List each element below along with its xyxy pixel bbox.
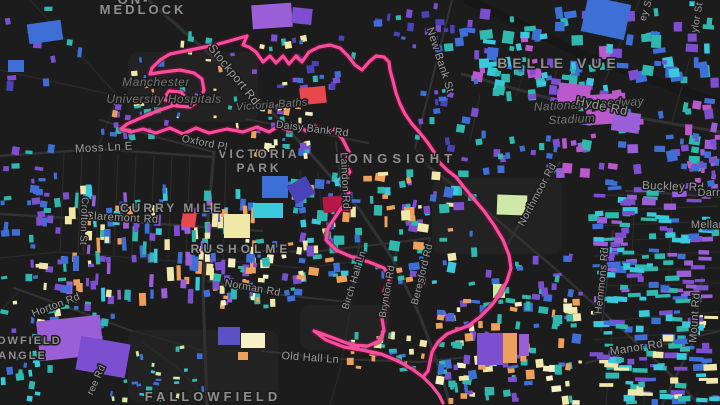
building xyxy=(377,187,384,194)
building xyxy=(57,259,62,264)
building xyxy=(139,293,146,306)
building xyxy=(149,274,154,287)
building xyxy=(469,231,473,237)
building xyxy=(662,60,667,65)
building xyxy=(123,379,127,383)
building xyxy=(25,150,32,154)
building xyxy=(11,163,19,169)
building xyxy=(418,205,422,209)
building xyxy=(334,71,341,78)
building xyxy=(621,227,629,233)
building xyxy=(604,363,618,368)
building xyxy=(36,264,44,268)
building xyxy=(674,339,688,344)
building xyxy=(31,197,40,205)
label-longsight: LONGSIGHT xyxy=(335,151,457,166)
building xyxy=(54,198,61,208)
building xyxy=(666,135,674,140)
building xyxy=(420,90,427,96)
building xyxy=(38,178,45,182)
building xyxy=(698,257,711,261)
building xyxy=(394,256,398,261)
building xyxy=(439,204,450,214)
building xyxy=(576,146,583,152)
building xyxy=(435,376,444,386)
building xyxy=(670,377,678,383)
building xyxy=(526,301,531,310)
building xyxy=(689,357,704,362)
building xyxy=(156,228,162,235)
building xyxy=(389,349,397,353)
building xyxy=(384,216,387,227)
building xyxy=(354,235,360,243)
building xyxy=(549,85,557,95)
building xyxy=(27,200,31,205)
label-rusholme: RUSHOLME xyxy=(191,242,292,256)
building xyxy=(616,324,628,329)
building xyxy=(445,313,450,321)
building xyxy=(599,162,605,169)
building xyxy=(654,61,661,66)
building xyxy=(628,69,639,80)
building xyxy=(401,36,406,40)
building xyxy=(406,335,411,341)
building xyxy=(167,267,175,281)
label-iangle: IANGLE xyxy=(0,350,47,362)
building xyxy=(580,168,590,178)
building xyxy=(605,373,619,379)
building xyxy=(565,381,570,387)
building xyxy=(491,323,500,331)
building xyxy=(293,207,299,213)
building xyxy=(638,381,645,387)
building xyxy=(443,260,447,265)
building xyxy=(691,265,705,269)
map-canvas[interactable]: ON-MEDLOCKBELLE VUEVICTORIAPARKLONGSIGHT… xyxy=(0,0,720,405)
building xyxy=(308,267,319,276)
building xyxy=(538,281,544,289)
building xyxy=(664,352,678,358)
building xyxy=(677,254,685,260)
building xyxy=(534,30,540,42)
building xyxy=(124,289,130,300)
building xyxy=(572,299,580,306)
building xyxy=(558,338,564,348)
building xyxy=(704,151,711,158)
building xyxy=(174,225,180,236)
building xyxy=(707,180,715,187)
building xyxy=(35,391,41,395)
building xyxy=(444,43,454,52)
building xyxy=(597,354,610,360)
building xyxy=(485,270,491,278)
label-manchester: Manchester xyxy=(122,75,190,89)
building xyxy=(111,314,115,319)
building xyxy=(536,80,546,86)
building xyxy=(419,340,427,348)
building xyxy=(429,117,434,124)
building xyxy=(406,9,413,18)
building xyxy=(546,135,551,142)
building xyxy=(374,205,383,216)
building xyxy=(680,139,684,145)
building xyxy=(551,385,561,392)
building xyxy=(299,40,303,44)
building xyxy=(184,368,188,371)
building xyxy=(192,379,197,382)
building xyxy=(101,288,105,302)
building xyxy=(33,190,38,194)
building xyxy=(515,302,522,307)
building xyxy=(667,228,673,233)
building xyxy=(447,253,456,262)
building xyxy=(433,108,441,114)
building xyxy=(541,287,549,297)
building xyxy=(460,393,467,399)
building xyxy=(627,359,634,365)
building xyxy=(495,70,502,76)
building xyxy=(663,335,674,342)
building xyxy=(646,290,658,296)
building xyxy=(703,364,717,371)
building xyxy=(539,143,544,150)
building xyxy=(297,275,306,279)
building xyxy=(1,377,6,385)
landmark-building xyxy=(503,333,517,363)
building xyxy=(114,122,119,128)
building xyxy=(685,124,692,135)
building xyxy=(339,35,345,40)
label-buckley-rd: Buckley Rd xyxy=(642,180,705,194)
building xyxy=(696,373,706,377)
building xyxy=(439,97,447,102)
building xyxy=(510,16,514,22)
building xyxy=(620,223,631,228)
building xyxy=(284,41,292,49)
building xyxy=(40,200,48,208)
building xyxy=(474,50,479,59)
building xyxy=(354,332,358,340)
building xyxy=(639,297,646,301)
building xyxy=(187,36,194,42)
building xyxy=(479,8,490,20)
building xyxy=(628,389,644,396)
building xyxy=(578,360,582,363)
building xyxy=(448,228,454,232)
building xyxy=(188,289,194,304)
building xyxy=(467,390,473,395)
building xyxy=(627,273,643,278)
building xyxy=(30,244,35,249)
building xyxy=(655,253,666,259)
building xyxy=(687,199,702,203)
building xyxy=(240,269,244,273)
building xyxy=(677,353,687,360)
building xyxy=(686,284,697,288)
landmark-building xyxy=(262,176,288,198)
building xyxy=(684,260,693,265)
label-stadium: Stadium xyxy=(548,111,595,127)
building xyxy=(604,321,613,326)
building xyxy=(498,153,503,159)
building xyxy=(605,212,619,218)
building xyxy=(654,146,665,152)
building xyxy=(305,112,313,116)
building xyxy=(522,295,531,300)
building xyxy=(326,180,330,184)
building xyxy=(261,257,270,267)
building xyxy=(644,266,658,271)
building xyxy=(642,198,656,205)
building xyxy=(641,217,657,221)
building xyxy=(54,173,58,180)
building xyxy=(6,81,13,91)
building xyxy=(1,230,10,238)
building xyxy=(44,208,51,213)
building xyxy=(122,237,127,251)
building xyxy=(332,77,340,84)
building xyxy=(570,323,576,328)
building xyxy=(525,45,533,52)
building xyxy=(481,131,485,139)
building xyxy=(180,279,186,288)
building xyxy=(475,138,483,145)
building xyxy=(686,43,699,52)
building xyxy=(89,264,95,267)
building xyxy=(653,364,663,370)
building xyxy=(597,217,607,224)
building xyxy=(388,240,400,252)
building xyxy=(627,144,638,153)
building xyxy=(528,373,533,378)
building xyxy=(491,278,499,285)
building xyxy=(450,25,455,33)
building xyxy=(566,314,573,322)
building xyxy=(479,58,489,68)
building xyxy=(706,378,718,384)
building xyxy=(253,263,257,268)
building xyxy=(664,203,676,209)
building xyxy=(674,367,687,371)
building xyxy=(649,248,659,252)
building xyxy=(161,288,168,298)
building xyxy=(594,194,606,198)
building xyxy=(669,288,677,293)
building xyxy=(106,289,112,297)
building xyxy=(299,258,306,264)
building xyxy=(630,267,645,273)
building xyxy=(154,249,158,263)
building xyxy=(704,109,714,120)
building xyxy=(443,28,448,32)
building xyxy=(448,398,453,404)
building xyxy=(443,186,454,198)
building xyxy=(406,169,413,177)
building xyxy=(649,233,656,239)
map-view[interactable]: ON-MEDLOCKBELLE VUEVICTORIAPARKLONGSIGHT… xyxy=(0,0,720,405)
building xyxy=(297,78,303,83)
label-medlock: MEDLOCK xyxy=(100,2,187,17)
building xyxy=(401,210,410,220)
building xyxy=(112,396,115,401)
building xyxy=(674,310,680,314)
building xyxy=(505,152,510,159)
building xyxy=(572,400,580,405)
building xyxy=(659,390,666,393)
building xyxy=(606,44,613,54)
building xyxy=(639,357,647,361)
building xyxy=(270,299,275,307)
building xyxy=(180,345,185,349)
building xyxy=(653,351,664,358)
building xyxy=(306,140,311,145)
building xyxy=(107,263,111,274)
building xyxy=(252,69,257,74)
building xyxy=(699,65,709,78)
building xyxy=(269,47,273,52)
building xyxy=(467,20,473,28)
building xyxy=(663,260,673,265)
building xyxy=(149,233,155,241)
building xyxy=(197,353,203,359)
building xyxy=(11,328,16,333)
building xyxy=(667,253,677,257)
building xyxy=(333,263,340,273)
label-belle-vue: BELLE VUE xyxy=(497,55,621,71)
building xyxy=(101,129,105,135)
building xyxy=(364,243,368,253)
building xyxy=(430,194,437,202)
building xyxy=(220,300,226,306)
building xyxy=(274,139,278,145)
building xyxy=(692,100,702,110)
building xyxy=(193,256,199,271)
building xyxy=(292,38,297,44)
building xyxy=(263,305,268,309)
building xyxy=(578,292,583,296)
building xyxy=(55,227,60,234)
building xyxy=(642,255,649,259)
building xyxy=(555,365,562,375)
building xyxy=(551,283,556,290)
building xyxy=(533,256,539,265)
building xyxy=(456,124,465,133)
building xyxy=(236,190,240,198)
building xyxy=(562,138,567,149)
building xyxy=(131,255,136,263)
building xyxy=(468,370,478,380)
building xyxy=(531,150,537,156)
building xyxy=(29,235,34,243)
building xyxy=(44,7,52,11)
building xyxy=(524,381,533,386)
building xyxy=(506,91,512,101)
building xyxy=(215,261,224,270)
building xyxy=(519,145,525,151)
building xyxy=(702,237,714,242)
building xyxy=(532,294,541,300)
building xyxy=(471,247,477,257)
building xyxy=(176,265,181,280)
building xyxy=(177,252,182,264)
building xyxy=(445,359,452,369)
building xyxy=(696,348,712,353)
building xyxy=(106,257,111,263)
building xyxy=(432,280,437,284)
building xyxy=(647,212,657,217)
building xyxy=(204,191,211,201)
building xyxy=(455,37,464,46)
building xyxy=(555,22,565,31)
building xyxy=(238,266,244,270)
building xyxy=(509,46,515,52)
building xyxy=(95,251,100,265)
building xyxy=(710,78,719,88)
building xyxy=(287,295,296,301)
building xyxy=(553,315,563,324)
building xyxy=(33,275,38,279)
building xyxy=(655,215,669,220)
label-darra: Darra xyxy=(697,187,720,199)
building xyxy=(614,367,629,370)
building xyxy=(66,39,73,46)
building xyxy=(363,176,372,182)
building xyxy=(622,251,634,255)
building xyxy=(592,223,603,229)
building xyxy=(117,238,121,244)
building xyxy=(3,222,8,231)
building xyxy=(571,140,577,146)
building xyxy=(307,246,314,257)
building xyxy=(418,118,423,124)
building xyxy=(696,398,708,403)
building xyxy=(209,257,214,263)
building xyxy=(370,196,374,204)
building xyxy=(685,108,691,114)
building xyxy=(382,194,388,199)
building xyxy=(180,41,184,48)
building xyxy=(659,219,672,223)
building xyxy=(622,211,635,216)
building xyxy=(478,321,483,328)
building xyxy=(459,375,469,381)
building xyxy=(213,88,216,90)
building xyxy=(36,217,43,225)
building xyxy=(453,365,457,371)
building xyxy=(704,43,710,53)
building xyxy=(4,196,12,201)
building xyxy=(520,355,526,361)
building xyxy=(156,379,162,381)
label-crofton-st: Crofton St xyxy=(77,197,90,245)
building xyxy=(314,179,324,189)
building xyxy=(666,314,673,321)
building xyxy=(175,346,179,352)
building xyxy=(479,29,493,40)
building xyxy=(7,75,16,81)
building xyxy=(463,355,470,365)
building xyxy=(259,44,265,49)
building xyxy=(563,303,572,312)
building xyxy=(151,363,154,367)
building xyxy=(483,167,490,175)
building xyxy=(434,90,438,94)
building xyxy=(457,307,460,312)
building xyxy=(593,241,608,246)
building xyxy=(417,223,429,233)
building xyxy=(43,78,50,86)
building xyxy=(5,18,11,25)
